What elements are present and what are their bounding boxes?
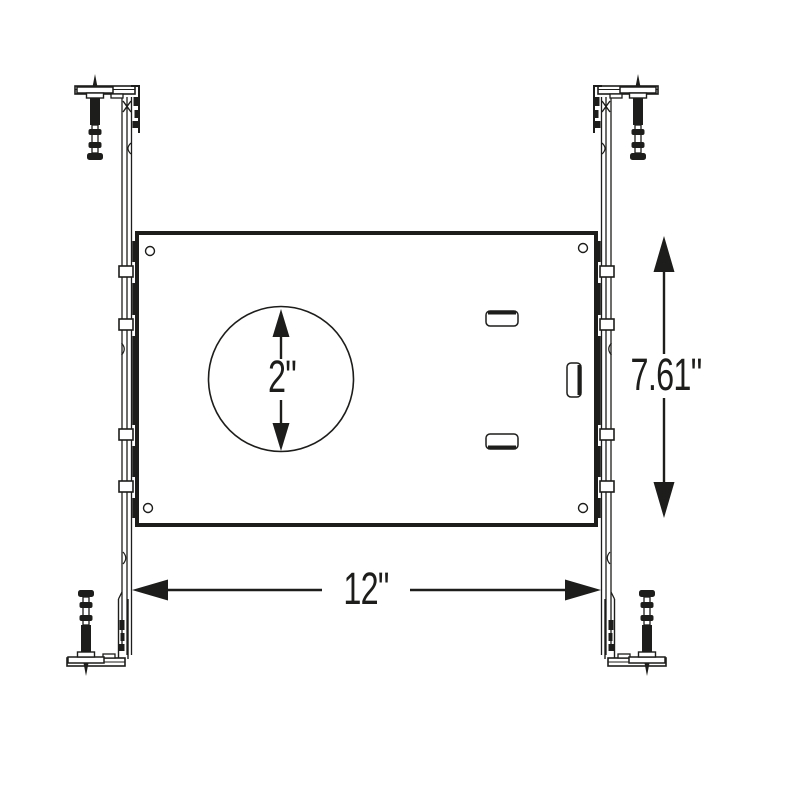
arrow-right-icon [565, 580, 601, 601]
cutout-diameter-label: 2" [268, 353, 296, 402]
mounting-width-label: 12" [343, 565, 388, 614]
hanger-bar-left [67, 74, 139, 676]
arrow-up-icon [654, 236, 675, 272]
mounting-plate [137, 233, 596, 525]
technical-drawing: 2" 7.61" 12" [0, 0, 800, 800]
arrow-left-icon [132, 580, 168, 601]
plate-height-label: 7.61" [631, 351, 702, 400]
corner-screw-hole [579, 244, 588, 253]
plate-height-dimension: 7.61" [631, 236, 702, 518]
mounting-width-dimension: 12" [132, 565, 601, 614]
plate-outline [137, 233, 596, 525]
arrow-down-icon [654, 482, 675, 518]
corner-screw-hole [579, 504, 588, 513]
corner-screw-hole [144, 504, 153, 513]
corner-screw-hole [146, 247, 155, 256]
